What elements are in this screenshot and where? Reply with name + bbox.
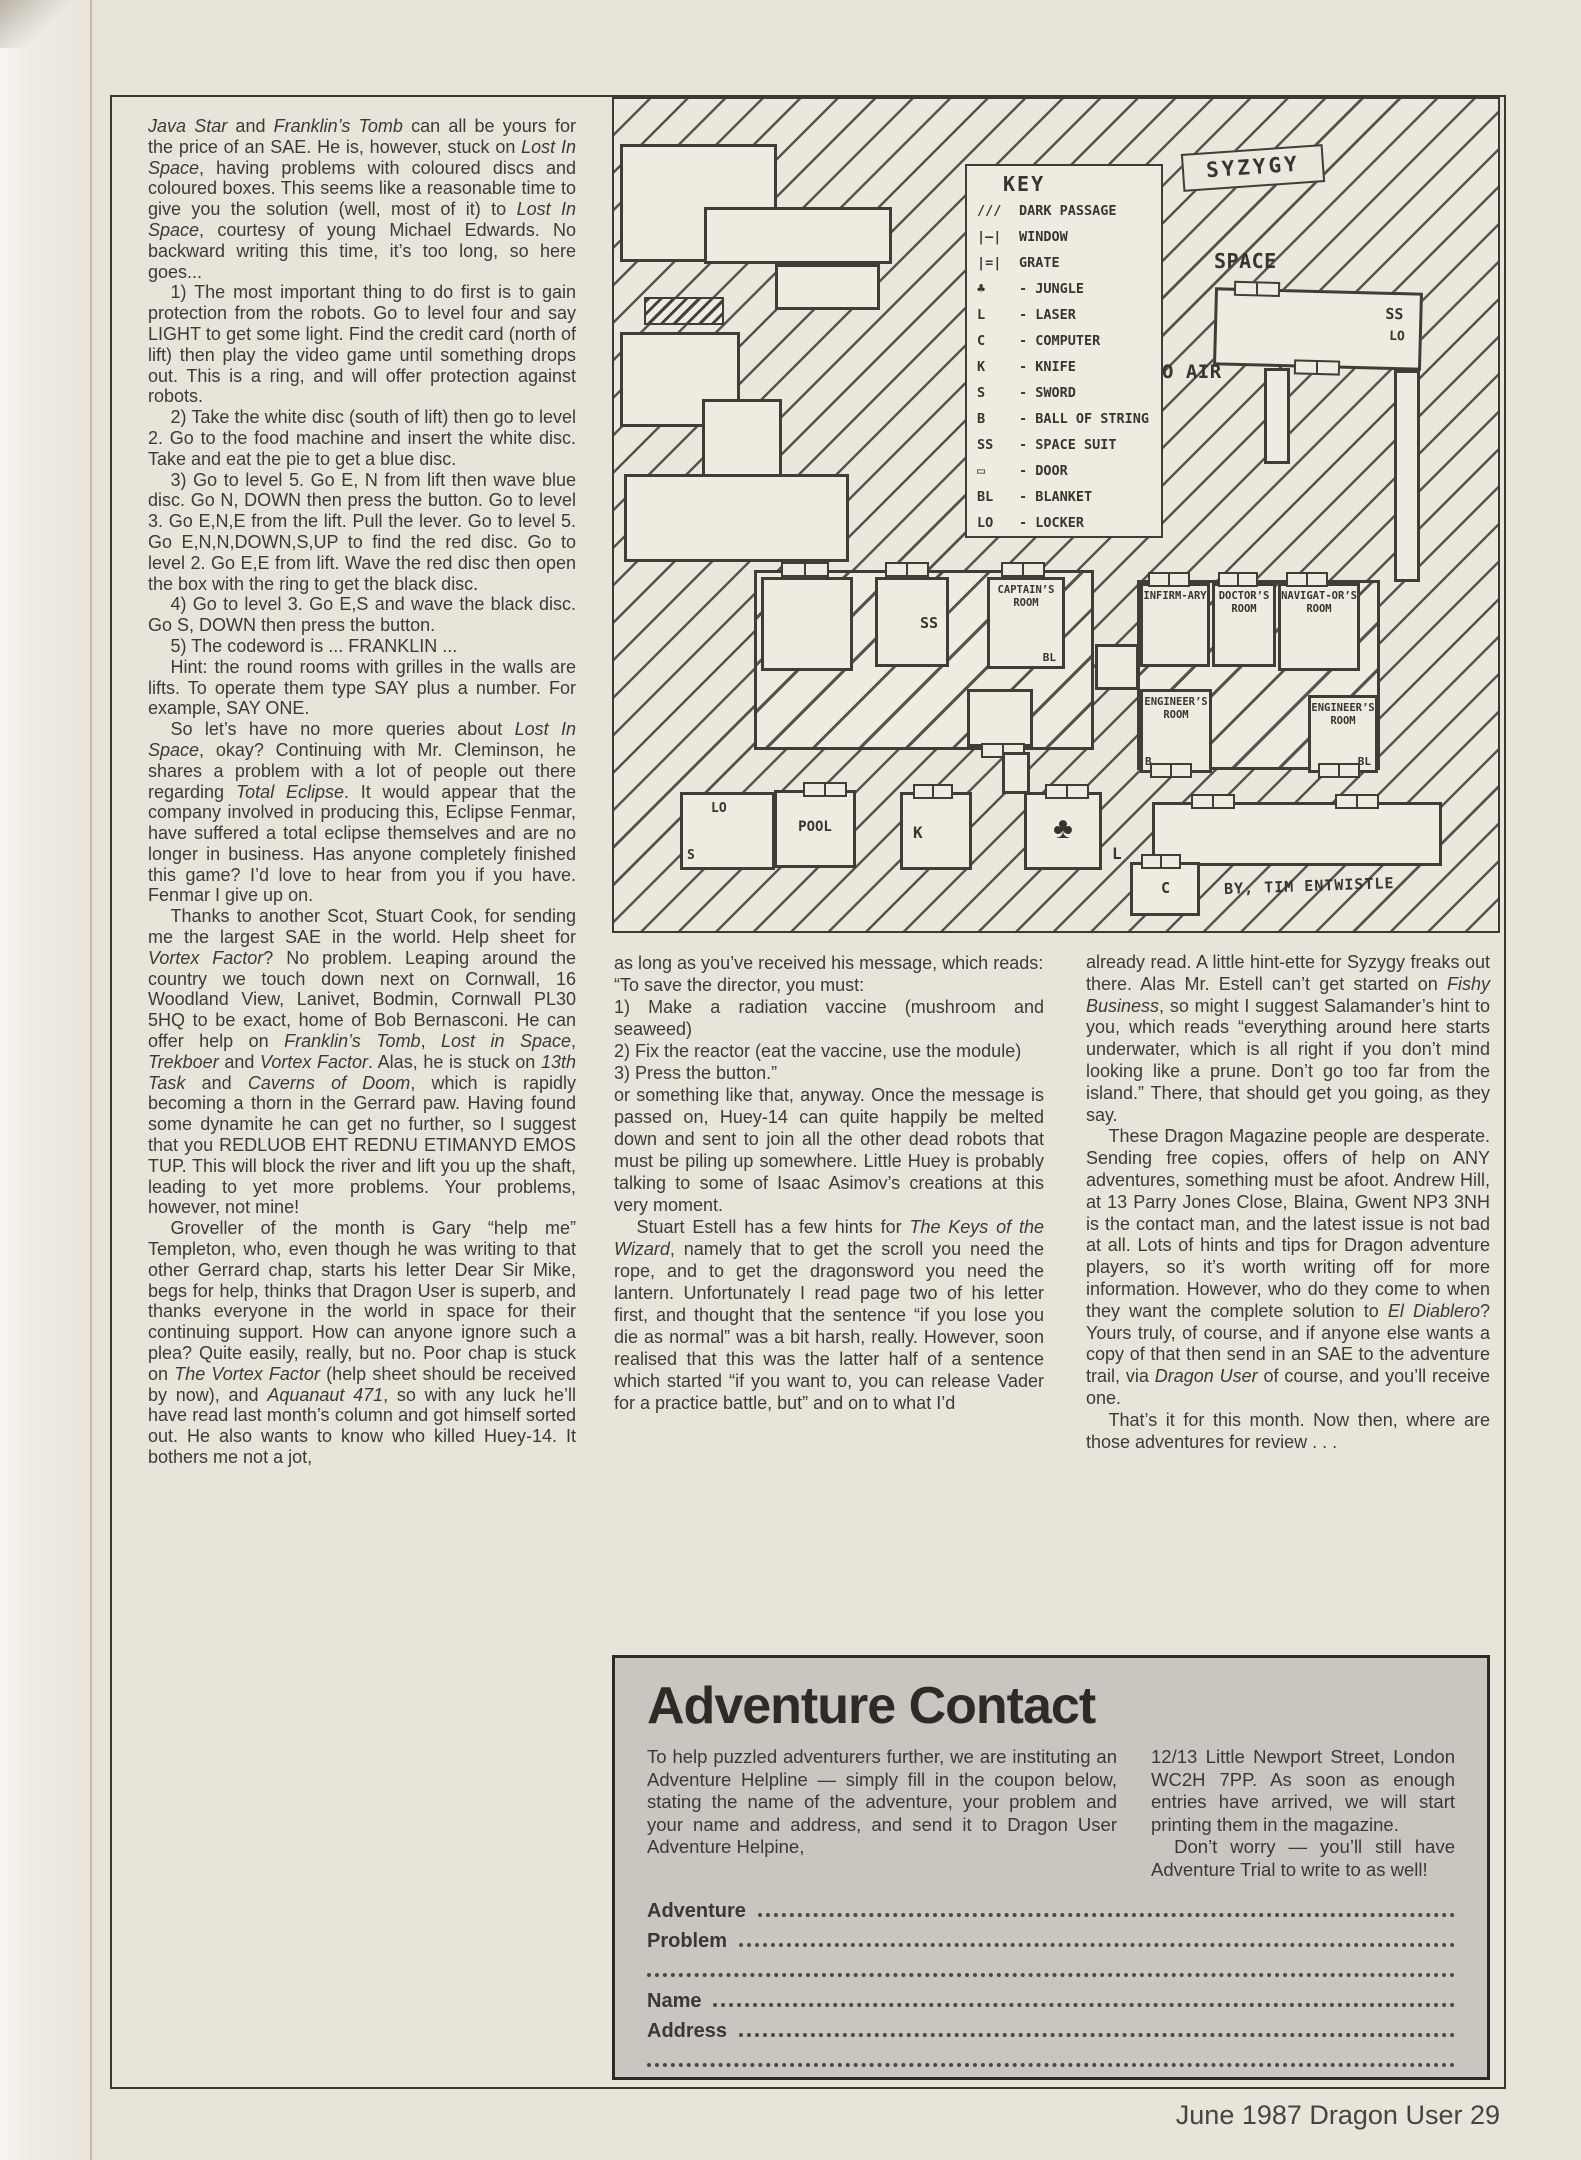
paragraph: These Dragon Magazine people are despera… [1086, 1126, 1490, 1409]
map-key-item: L- LASER [977, 302, 1151, 328]
map-key-item: K- KNIFE [977, 354, 1151, 380]
adventure-contact-intro: To help puzzled adventurers further, we … [647, 1746, 1455, 1881]
key-symbol: BL [977, 484, 1013, 510]
facing-page-edge [0, 0, 92, 2160]
room-locker-sword: LO S [680, 792, 775, 870]
paragraph: 2) Take the white disc (south of lift) t… [148, 407, 576, 469]
key-symbol: K [977, 354, 1013, 380]
coupon-field-label: Problem [647, 1930, 727, 1953]
laser-label: L [1112, 844, 1122, 863]
knife-label: K [913, 823, 923, 842]
map-corridor [1394, 370, 1420, 582]
coupon-row: Problem [647, 1923, 1455, 1953]
paragraph: So let’s have no more queries about Lost… [148, 719, 576, 906]
room-knife: K [900, 792, 972, 870]
map-key-item: ▭- DOOR [977, 458, 1151, 484]
door-icon [1045, 784, 1089, 799]
room-label: DOCTOR’S ROOM [1215, 586, 1273, 615]
map-title-box: SYZYGY [1181, 144, 1325, 192]
paragraph: 2) Fix the reactor (eat the vaccine, use… [614, 1040, 1044, 1062]
key-label: - JUNGLE [1019, 276, 1084, 302]
key-label: - BALL OF STRING [1019, 406, 1149, 432]
key-label: - KNIFE [1019, 354, 1076, 380]
door-icon [781, 562, 829, 577]
paragraph: 3) Press the button.” [614, 1062, 1044, 1084]
locker-label: LO [711, 801, 727, 816]
key-symbol: LO [977, 510, 1013, 536]
coupon-row: Name [647, 1983, 1455, 2013]
room-spacesuit: SS [875, 577, 949, 667]
room-infirmary: INFIRM-ARY [1140, 583, 1210, 667]
room-pool: POOL [774, 790, 856, 868]
room-label: ENGINEER’S ROOM [1143, 692, 1209, 721]
map-title: SYZYGY [1205, 152, 1300, 182]
key-label: GRATE [1019, 250, 1060, 276]
key-symbol: C [977, 328, 1013, 354]
paragraph: Stuart Estell has a few hints for The Ke… [614, 1216, 1044, 1414]
map-key-item: |=|GRATE [977, 250, 1151, 276]
paragraph: “To save the director, you must: [614, 974, 1044, 996]
paragraph: Don’t worry — you’ll still have Adventur… [1151, 1836, 1455, 1881]
door-icon [1001, 562, 1045, 577]
map-corridor [775, 264, 880, 310]
map-corridor [1002, 752, 1030, 794]
room-spacesuit-locker: SS LO [1213, 287, 1423, 370]
paragraph: Java Star and Franklin’s Tomb can all be… [148, 116, 576, 282]
syzygy-map: KEY ///DARK PASSAGE|—|WINDOW|=|GRATE♣- J… [612, 97, 1500, 933]
paragraph: Hint: the round rooms with grilles in th… [148, 657, 576, 719]
map-corridor [1264, 368, 1290, 464]
map-key-title: KEY [1003, 172, 1151, 196]
door-icon [1335, 794, 1379, 809]
door-icon [1141, 854, 1181, 869]
door-icon [1234, 281, 1280, 297]
magazine-page-scan: { "colors":{"paper":"#e8e4da","ink":"#3d… [0, 0, 1581, 2160]
door-icon [1294, 359, 1340, 375]
scan-corner-shadow [0, 0, 72, 48]
coupon-row [647, 1953, 1455, 1983]
door-icon [803, 782, 847, 797]
map-key-item: BL- BLANKET [977, 484, 1151, 510]
paragraph: 1) The most important thing to do first … [148, 282, 576, 407]
paragraph: That’s it for this month. Now then, wher… [1086, 1410, 1490, 1454]
map-key-item: C- COMPUTER [977, 328, 1151, 354]
map-corridor [1095, 644, 1139, 690]
paragraph: 1) Make a radiation vaccine (mushroom an… [614, 996, 1044, 1040]
sword-label: S [687, 848, 695, 863]
room-label: POOL [777, 793, 853, 836]
room-label: INFIRM-ARY [1143, 586, 1207, 603]
key-symbol: ▭ [977, 458, 1013, 484]
central-room-block: SS CAPTAIN’S ROOM BL [754, 570, 1094, 750]
map-room [761, 577, 853, 671]
room-label: CAPTAIN’S ROOM [990, 580, 1062, 609]
coupon-dotted-line [713, 2003, 1455, 2007]
key-symbol: ♣ [977, 276, 1013, 302]
paragraph: 3) Go to level 5. Go E, N from lift then… [148, 470, 576, 595]
page-footer: June 1987 Dragon User 29 [1100, 2100, 1500, 2131]
map-corridor [704, 207, 892, 264]
room-computer: C [1130, 862, 1200, 916]
map-key-item: ♣- JUNGLE [977, 276, 1151, 302]
coupon-row [647, 2043, 1455, 2073]
room-engineers-b: ENGINEER’S ROOM B [1140, 689, 1212, 773]
map-key-item: SS- SPACE SUIT [977, 432, 1151, 458]
room-jungle: ♣ [1024, 792, 1102, 870]
door-icon [1150, 763, 1192, 778]
key-symbol: /// [977, 198, 1013, 224]
space-label: SPACE [1214, 249, 1277, 273]
map-key-item: S- SWORD [977, 380, 1151, 406]
coupon-dotted-line [739, 1943, 1455, 1947]
coupon-row: Address [647, 2013, 1455, 2043]
room-label: NAVIGAT-OR’S ROOM [1281, 586, 1357, 615]
locker-label: LO [1389, 329, 1405, 344]
key-label: - DOOR [1019, 458, 1068, 484]
map-key-item: LO- LOCKER [977, 510, 1151, 536]
key-label: WINDOW [1019, 224, 1068, 250]
crew-room-block: INFIRM-ARY DOCTOR’S ROOM NAVIGAT-OR’S RO… [1137, 580, 1380, 770]
key-symbol: SS [977, 432, 1013, 458]
door-icon [1318, 763, 1360, 778]
door-icon [885, 562, 929, 577]
coupon-dotted-line [739, 2033, 1455, 2037]
room-navigators: NAVIGAT-OR’S ROOM [1278, 583, 1360, 671]
left-column: Java Star and Franklin’s Tomb can all be… [148, 116, 576, 1468]
coupon-row: Adventure [647, 1893, 1455, 1923]
map-room [967, 689, 1033, 747]
paragraph: as long as you’ve received his message, … [614, 952, 1044, 974]
door-icon [1286, 572, 1328, 587]
door-icon [913, 784, 953, 799]
key-label: - SWORD [1019, 380, 1076, 406]
key-symbol: |=| [977, 250, 1013, 276]
coupon-field-label: Name [647, 1990, 701, 2013]
paragraph: already read. A little hint-ette for Syz… [1086, 952, 1490, 1126]
key-symbol: S [977, 380, 1013, 406]
map-room [624, 474, 849, 562]
map-key-list: ///DARK PASSAGE|—|WINDOW|=|GRATE♣- JUNGL… [977, 198, 1151, 536]
room-doctors: DOCTOR’S ROOM [1212, 583, 1276, 667]
door-icon [1148, 572, 1190, 587]
room-label: ENGINEER’S ROOM [1311, 698, 1375, 727]
key-label: - COMPUTER [1019, 328, 1100, 354]
map-credit: BY, TIM ENTWISTLE [1224, 874, 1395, 898]
map-key: KEY ///DARK PASSAGE|—|WINDOW|=|GRATE♣- J… [965, 164, 1163, 538]
key-label: - LASER [1019, 302, 1076, 328]
coupon-dotted-line [647, 1973, 1455, 1977]
paragraph: 4) Go to level 3. Go E,S and wave the bl… [148, 594, 576, 636]
key-symbol: B [977, 406, 1013, 432]
paragraph: 5) The codeword is ... FRANKLIN ... [148, 636, 576, 657]
paragraph: Groveller of the month is Gary “help me”… [148, 1218, 576, 1468]
room-captains: CAPTAIN’S ROOM BL [987, 577, 1065, 669]
key-label: DARK PASSAGE [1019, 198, 1117, 224]
coupon-field-label: Adventure [647, 1900, 746, 1923]
right-column: already read. A little hint-ette for Syz… [1086, 952, 1490, 1453]
coupon-dotted-line [647, 2063, 1455, 2067]
computer-label: C [1161, 879, 1170, 897]
map-key-item: |—|WINDOW [977, 224, 1151, 250]
paragraph: Thanks to another Scot, Stuart Cook, for… [148, 906, 576, 1218]
blanket-label: BL [1043, 651, 1056, 664]
intro-right: 12/13 Little Newport Street, London WC2H… [1151, 1746, 1455, 1881]
coupon-dotted-line [758, 1913, 1455, 1917]
spacesuit-label: SS [920, 614, 938, 632]
door-icon [1191, 794, 1235, 809]
map-key-item: B- BALL OF STRING [977, 406, 1151, 432]
intro-left: To help puzzled adventurers further, we … [647, 1746, 1117, 1881]
adventure-contact-box: Adventure Contact To help puzzled advent… [612, 1655, 1490, 2080]
map-corridor [1152, 802, 1442, 866]
dark-passage [644, 297, 724, 325]
spacesuit-label: SS [1385, 305, 1404, 323]
coupon-field-label: Address [647, 2020, 727, 2043]
key-symbol: L [977, 302, 1013, 328]
jungle-icon: ♣ [1027, 795, 1099, 863]
paragraph: 12/13 Little Newport Street, London WC2H… [1151, 1746, 1455, 1836]
key-symbol: |—| [977, 224, 1013, 250]
adventure-contact-title: Adventure Contact [647, 1676, 1455, 1736]
middle-column: as long as you’ve received his message, … [614, 952, 1044, 1414]
helpline-coupon: AdventureProblemNameAddress [647, 1893, 1455, 2073]
map-key-item: ///DARK PASSAGE [977, 198, 1151, 224]
key-label: - BLANKET [1019, 484, 1092, 510]
key-label: - SPACE SUIT [1019, 432, 1117, 458]
door-icon [1218, 572, 1258, 587]
key-label: - LOCKER [1019, 510, 1084, 536]
paragraph: or something like that, anyway. Once the… [614, 1084, 1044, 1216]
room-engineers-bl: ENGINEER’S ROOM BL [1308, 695, 1378, 773]
